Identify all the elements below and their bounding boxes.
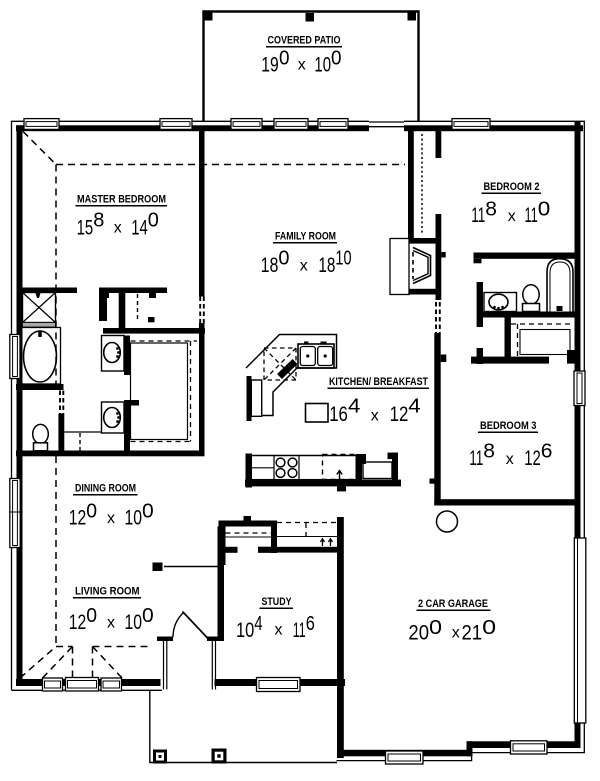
svg-text:15: 15: [77, 216, 94, 239]
svg-text:4: 4: [254, 613, 262, 635]
svg-text:12: 12: [69, 611, 87, 634]
svg-text:0: 0: [142, 605, 154, 627]
svg-text:10: 10: [125, 611, 143, 634]
svg-text:4: 4: [348, 395, 360, 417]
svg-text:COVERED PATIO: COVERED PATIO: [268, 35, 341, 47]
svg-text:10: 10: [236, 619, 254, 642]
svg-text:12: 12: [69, 507, 87, 530]
svg-text:LIVING ROOM: LIVING ROOM: [75, 586, 140, 598]
svg-text:KITCHEN/ BREAKFAST: KITCHEN/ BREAKFAST: [329, 376, 428, 388]
svg-text:x: x: [107, 510, 115, 527]
svg-text:BEDROOM 2: BEDROOM 2: [484, 181, 540, 193]
svg-text:0: 0: [86, 501, 97, 523]
svg-text:20: 20: [408, 622, 429, 645]
svg-text:x: x: [275, 622, 283, 639]
svg-text:x: x: [300, 258, 308, 275]
svg-text:11: 11: [469, 447, 483, 470]
svg-text:0: 0: [429, 617, 442, 639]
svg-text:0: 0: [331, 47, 342, 69]
svg-text:x: x: [107, 615, 115, 632]
svg-text:0: 0: [278, 248, 289, 270]
svg-text:x: x: [114, 219, 122, 236]
svg-text:11: 11: [471, 204, 485, 227]
svg-text:x: x: [298, 57, 306, 74]
svg-text:8: 8: [483, 441, 495, 463]
svg-text:18: 18: [261, 254, 279, 277]
svg-text:0: 0: [482, 617, 496, 639]
svg-text:19: 19: [261, 54, 278, 77]
svg-text:0: 0: [86, 605, 97, 627]
svg-text:x: x: [371, 408, 379, 425]
svg-text:0: 0: [279, 47, 290, 69]
svg-text:2 CAR GARAGE: 2 CAR GARAGE: [418, 598, 488, 610]
svg-text:18: 18: [318, 254, 335, 277]
svg-text:x: x: [506, 451, 514, 468]
svg-text:x: x: [508, 208, 516, 225]
svg-text:10: 10: [314, 54, 331, 77]
svg-text:4: 4: [408, 395, 420, 417]
svg-text:8: 8: [93, 210, 104, 232]
svg-text:14: 14: [131, 216, 148, 239]
svg-text:0: 0: [142, 501, 154, 523]
svg-text:6: 6: [541, 441, 553, 463]
svg-text:12: 12: [524, 447, 541, 470]
svg-text:8: 8: [485, 199, 497, 221]
svg-text:10: 10: [125, 507, 143, 530]
svg-text:0: 0: [538, 199, 551, 221]
svg-text:16: 16: [329, 403, 348, 426]
svg-text:6: 6: [306, 613, 315, 635]
svg-text:FAMILY ROOM: FAMILY ROOM: [275, 231, 336, 243]
svg-text:11: 11: [525, 204, 538, 227]
svg-text:MASTER BEDROOM: MASTER BEDROOM: [77, 194, 166, 206]
svg-text:x: x: [452, 624, 460, 641]
svg-text:STUDY: STUDY: [262, 596, 293, 608]
svg-text:11: 11: [293, 619, 306, 642]
svg-text:0: 0: [148, 210, 159, 232]
svg-text:10: 10: [335, 248, 351, 270]
svg-text:12: 12: [390, 403, 409, 426]
svg-text:BEDROOM 3: BEDROOM 3: [480, 420, 537, 432]
svg-text:DINING ROOM: DINING ROOM: [75, 483, 136, 495]
svg-text:21: 21: [462, 622, 483, 645]
